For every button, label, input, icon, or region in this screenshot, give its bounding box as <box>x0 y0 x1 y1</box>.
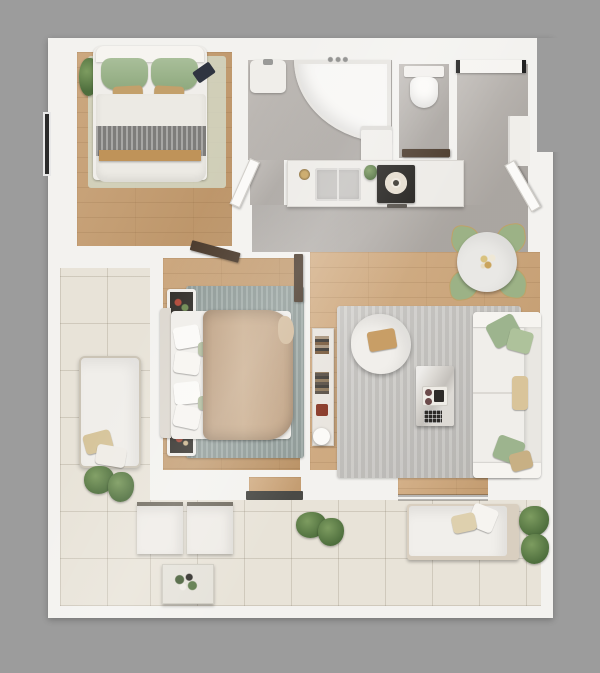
tray-cup-b <box>425 398 432 405</box>
kitchen-faucet <box>299 169 310 180</box>
floor-plan-render <box>0 0 600 673</box>
tray-cup-a <box>425 389 432 396</box>
coffee-table-waffle-decor <box>424 410 442 423</box>
bathtub-faucet <box>326 55 348 64</box>
bedroom1-window <box>43 112 51 176</box>
threshold-bedroom2 <box>249 477 301 491</box>
bed2-pillow-white-c <box>173 381 201 406</box>
bed1-foot-bench <box>99 150 201 161</box>
console-books-b <box>315 372 329 394</box>
outdoor-chair-b <box>187 502 233 554</box>
entry-wardrobe <box>508 116 530 166</box>
door-mat <box>246 491 303 500</box>
outdoor-chair-a <box>137 502 183 554</box>
toilet-tank <box>404 66 444 77</box>
sliding-door-frame-a <box>398 494 488 497</box>
bed2-headboard <box>160 308 171 438</box>
cooktop-bowl-center <box>393 180 399 186</box>
counter-handle <box>387 204 407 208</box>
sofa-pillow-tan-lumbar <box>512 376 528 410</box>
kitchen-sink-divider <box>337 168 339 201</box>
washing-machine <box>361 126 392 162</box>
bed2-blanket-fold <box>278 316 294 344</box>
outdoor-table-tray <box>170 570 202 594</box>
console-books-a <box>315 336 329 354</box>
console-lamp <box>313 428 330 445</box>
tray-box <box>434 390 444 402</box>
bed2-pillow-white-b <box>173 350 202 375</box>
dining-centerpiece <box>478 252 498 272</box>
vanity-faucet <box>263 59 273 65</box>
bedroom2-door-leaf <box>294 254 303 302</box>
wc-door-leaf <box>402 149 450 157</box>
slab-corner-notch <box>537 38 600 152</box>
sliding-door-frame-b <box>398 499 488 501</box>
entry-door <box>456 60 526 73</box>
console-decor-red <box>316 404 328 416</box>
toilet-bowl <box>410 77 438 108</box>
